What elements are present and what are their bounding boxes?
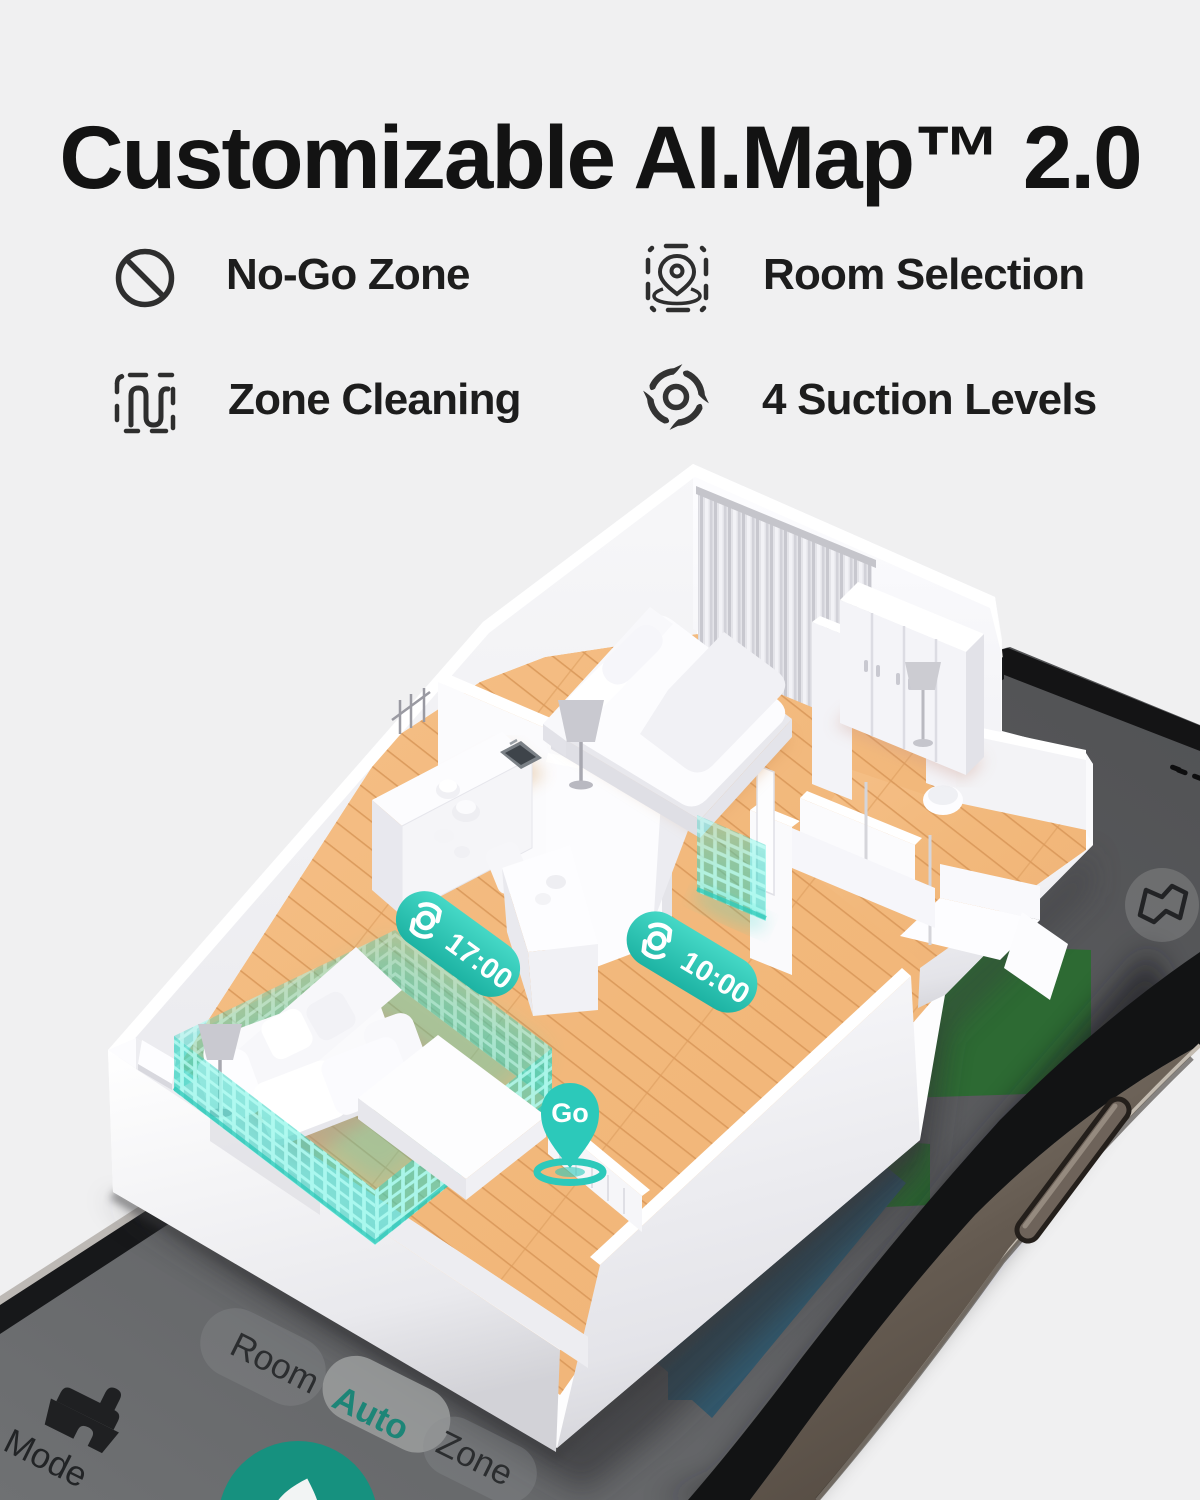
svg-text:Go: Go — [551, 1098, 589, 1128]
